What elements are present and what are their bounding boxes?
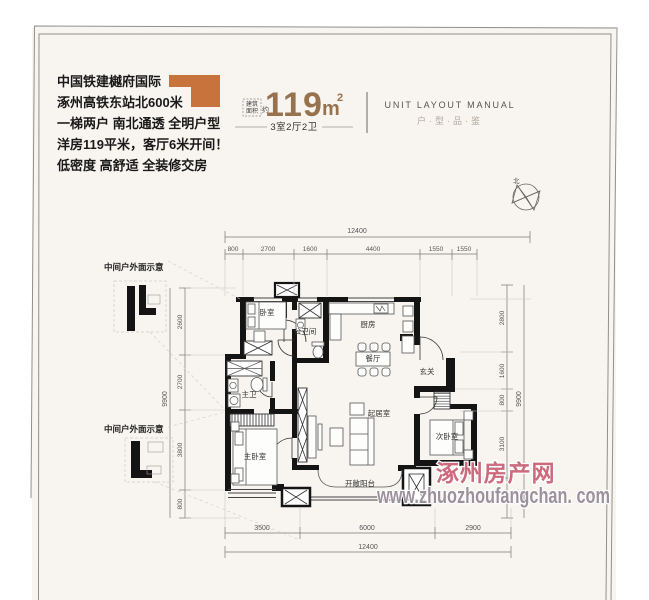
svg-text:2700: 2700 [261,246,276,253]
svg-text:1550: 1550 [457,246,472,253]
svg-text:2: 2 [337,92,343,104]
svg-text:户·型·品·鉴: 户·型·品·鉴 [417,115,483,126]
svg-text:9900: 9900 [516,391,523,407]
svg-text:中间户外面示意: 中间户外面示意 [104,262,164,272]
svg-text:1600: 1600 [303,246,318,253]
svg-text:3800: 3800 [177,442,184,457]
svg-text:2900: 2900 [465,525,481,532]
svg-text:800: 800 [177,498,184,509]
svg-text:北: 北 [513,177,520,185]
svg-text:3室2厅2卫: 3室2厅2卫 [270,121,317,133]
svg-text:119: 119 [265,86,323,124]
svg-text:公卫间: 公卫间 [294,327,317,336]
svg-text:厨房: 厨房 [361,319,376,329]
svg-text:起居室: 起居室 [368,408,391,418]
svg-text:3100: 3100 [499,436,506,451]
svg-text:中国铁建樾府国际: 中国铁建樾府国际 [57,74,161,89]
svg-text:2700: 2700 [177,374,184,389]
svg-text:涿州高铁东站北600米: 涿州高铁东站北600米 [57,95,184,110]
svg-text:9900: 9900 [162,391,169,407]
svg-text:800: 800 [499,394,506,405]
svg-text:玄关: 玄关 [420,366,435,376]
svg-text:2600: 2600 [177,314,184,329]
svg-text:UNIT LAYOUT MANUAL: UNIT LAYOUT MANUAL [385,100,516,110]
svg-text:一梯两户 南北通透 全明户型: 一梯两户 南北通透 全明户型 [57,116,220,131]
svg-text:低密度 高舒适 全装修交房: 低密度 高舒适 全装修交房 [56,158,207,173]
svg-text:次卧室: 次卧室 [436,431,459,441]
svg-text:4400: 4400 [366,246,381,253]
svg-text:1600: 1600 [499,363,506,378]
svg-text:3500: 3500 [254,525,270,532]
svg-text:2800: 2800 [499,310,506,325]
svg-text:1550: 1550 [429,246,444,253]
svg-text:洋房119平米，客厅6米开间！: 洋房119平米，客厅6米开间！ [57,137,228,152]
svg-text:主卫: 主卫 [242,389,257,399]
svg-text:餐厅: 餐厅 [366,354,381,363]
svg-text:主卧室: 主卧室 [244,451,267,461]
svg-text:中间户外面示意: 中间户外面示意 [104,424,164,434]
svg-text:6000: 6000 [359,525,375,532]
svg-text:开敞阳台: 开敞阳台 [345,478,375,488]
svg-text:卧室: 卧室 [260,307,275,317]
svg-text:12400: 12400 [358,544,378,551]
svg-text:建筑: 建筑 [246,100,258,108]
svg-text:800: 800 [228,246,239,253]
svg-text:www.zhuozhoufangchan. com: www.zhuozhoufangchan. com [376,483,610,508]
svg-text:面积: 面积 [246,107,258,115]
svg-text:12400: 12400 [347,228,367,235]
